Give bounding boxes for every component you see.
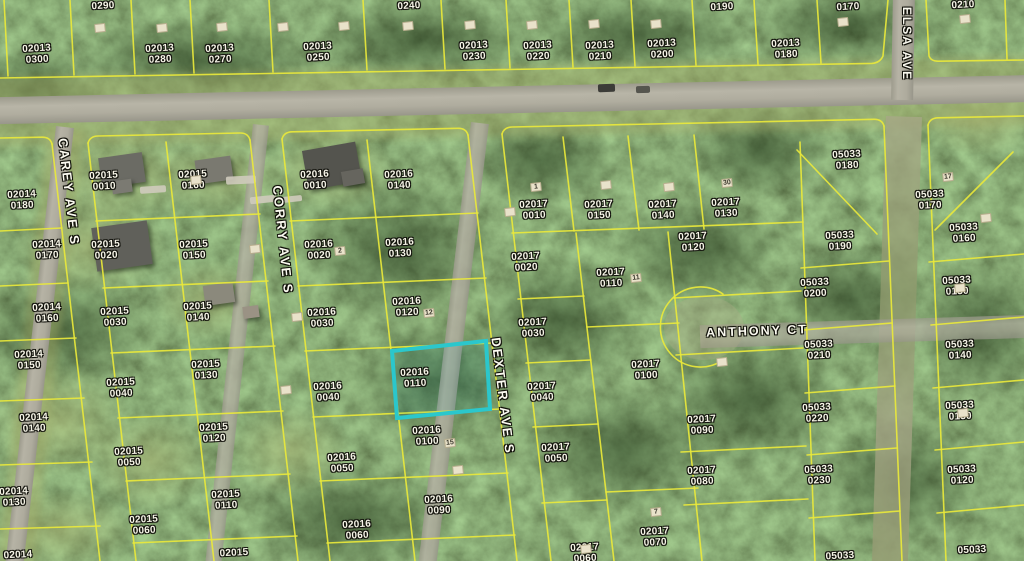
parcel-label: 02014 [3,550,32,561]
parcel-label: 02013 0220 [523,40,553,63]
parcel-label: 02017 0040 [527,381,557,404]
parcel-label: 05033 [957,545,986,557]
parcel-label: 02013 0180 [771,38,801,61]
lot-number-marker: 11 [630,273,642,283]
parcel-label: 02017 0010 [519,199,549,222]
parcel-label: 02017 0120 [678,231,708,254]
lot-marker [957,408,969,418]
parcel-label: 02015 0130 [191,359,221,382]
parcel-label: 05033 0180 [832,149,862,172]
parcel-label: 02013 0210 [585,40,615,63]
parcel-label: 05033 0220 [802,402,832,425]
parcel-label: 05033 [825,551,854,561]
parcel-label: 02015 0030 [100,306,130,329]
lot-marker [277,22,289,32]
parcel-label: 05033 0140 [945,339,975,362]
parcel-label: 02016 0040 [313,381,343,404]
parcel-label: 02014 0180 [7,189,37,212]
parcel-label: 0240 [397,1,421,13]
lot-number-marker: 1 [530,182,542,192]
parcel-label: 05033 0120 [947,464,977,487]
parcel-label: 02016 0100 [412,425,442,448]
lot-marker [980,213,992,223]
parcel-label: 02016 0050 [327,452,357,475]
parcel-label: 02017 0070 [640,526,670,549]
parcel-label: 02014 0170 [32,239,62,262]
lot-marker [588,19,600,29]
parcel-label: 02013 0250 [303,41,333,64]
parcel-label: 05033 0190 [825,230,855,253]
parcel-label: 02017 0020 [511,251,541,274]
parcel-label: 02017 0100 [631,359,661,382]
parcel-label: 02015 0020 [91,239,121,262]
parcel-label: 02017 0030 [518,317,548,340]
lot-marker [216,22,228,32]
lot-marker [190,175,202,185]
lot-marker [580,544,592,554]
parcel-label: 02015 0050 [114,446,144,469]
parcel-label: 02017 0130 [711,197,741,220]
lot-marker [249,244,261,254]
parcel-label: 02016 0090 [424,494,454,517]
lot-number-marker: 15 [444,438,456,448]
parcel-label: 02017 0050 [541,442,571,465]
parcel-label: 02016 0060 [342,519,372,542]
parcel-label: 02017 0150 [584,199,614,222]
parcel-label: 02015 0060 [129,514,159,537]
parcel-label: 02014 0160 [32,302,62,325]
parcel-label: 02016 0120 [392,296,422,319]
street-label-carey-ave-s: CAREY AVE S [55,137,82,246]
lot-number-marker: 7 [650,507,662,517]
parcel-label: 02015 0110 [211,489,241,512]
parcel-label: 02016 0110 [400,367,430,390]
parcel-label: 02013 0230 [459,40,489,63]
parcel-label: 02016 0140 [384,169,414,192]
parcel-label: 05033 0200 [800,277,830,300]
lot-marker [716,357,728,367]
parcel-label: 02016 0130 [385,237,415,260]
parcel-label: 02017 0090 [687,414,717,437]
parcel-label: 02013 0300 [22,43,52,66]
parcel-label: 02014 0150 [14,349,44,372]
parcel-label: 05033 0230 [804,464,834,487]
lot-marker [280,385,292,395]
parcel-label: 05033 0170 [915,189,945,212]
parcel-label: 02015 0150 [179,239,209,262]
parcel-label: 0290 [91,1,115,13]
lot-marker [452,465,464,475]
aerial-parcel-map: 02013 0300029002013 028002013 027002013 … [0,0,1024,561]
street-label-elsa-ave-s: ELSA AVE [900,7,914,81]
lot-marker [338,21,350,31]
parcel-label: 02015 0120 [199,422,229,445]
lot-marker [954,283,966,293]
parcel-label: 02015 0010 [89,170,119,193]
street-label-corry-ave-s: CORRY AVE S [270,185,296,295]
lot-marker [650,19,662,29]
lot-number-marker: 17 [942,172,954,182]
parcel-label: 02016 0030 [307,307,337,330]
parcel-label: 02017 0110 [596,267,626,290]
lot-marker [402,21,414,31]
parcel-label: 02015 0140 [183,301,213,324]
lot-marker [526,20,538,30]
parcel-label: 0210 [951,0,975,12]
parcel-label: 05033 0210 [804,339,834,362]
parcel-label: 05033 0160 [949,222,979,245]
parcel-label: 0190 [710,2,734,14]
street-label-dexter-ave-s: DEXTER AVE S [488,337,517,456]
parcel-label: 02013 0270 [205,43,235,66]
parcel-label: 02013 0200 [647,38,677,61]
parcel-label: 02015 [219,548,248,560]
parcel-label: 02017 0140 [648,199,678,222]
lot-marker [600,180,612,190]
lot-marker [837,17,849,27]
labels-layer: 02013 0300029002013 028002013 027002013 … [0,0,1024,561]
lot-marker [156,23,168,33]
parcel-label: 02017 0080 [687,465,717,488]
parcel-label: 02014 0140 [19,412,49,435]
parcel-label: 02015 0040 [106,377,136,400]
lot-marker [291,312,303,322]
lot-marker [959,14,971,24]
parcel-label: 02014 0130 [0,486,29,509]
lot-marker [663,182,675,192]
parcel-label: 02016 0020 [304,239,334,262]
lot-marker [504,207,516,217]
lot-marker [94,23,106,33]
lot-number-marker: 30 [721,178,733,188]
parcel-label: 02016 0010 [300,169,330,192]
parcel-label: 0170 [836,2,860,14]
lot-number-marker: 12 [423,308,435,318]
street-label-anthony-ct: ANTHONY CT [706,322,808,340]
lot-number-marker: 2 [334,246,346,256]
parcel-label: 02013 0280 [145,43,175,66]
lot-marker [464,20,476,30]
